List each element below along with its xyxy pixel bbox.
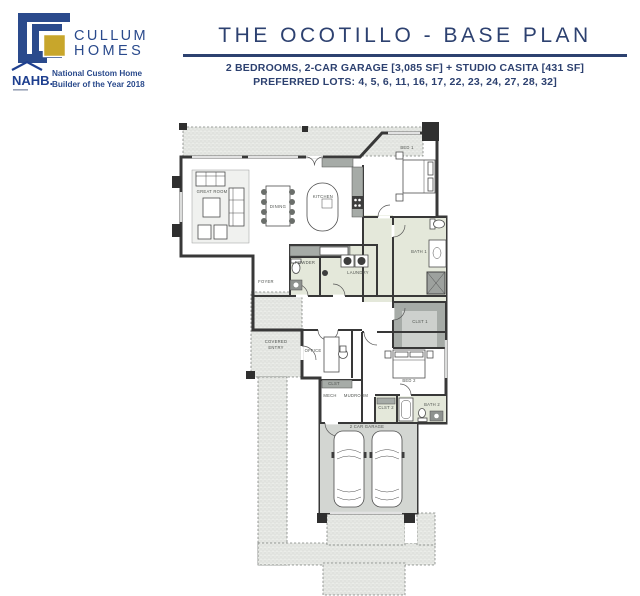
- room-label: DINING: [270, 204, 286, 209]
- floor-plan-sheet: CULLUM HOMES NAHB. National Custom Home …: [0, 0, 640, 596]
- clst2-shelf: [377, 398, 395, 404]
- armchair: [214, 225, 227, 239]
- room-label: CLST 1: [412, 319, 428, 324]
- room-label: GREAT ROOM: [197, 189, 228, 194]
- kitchen-counter: [352, 167, 363, 217]
- car: [370, 431, 405, 507]
- kitchen-counter: [322, 158, 353, 167]
- room-label: BED 1: [400, 145, 414, 150]
- toilet: [419, 409, 426, 418]
- covered-entry-area: [251, 292, 302, 377]
- washer-drum: [344, 257, 352, 265]
- car: [332, 431, 367, 507]
- driveway-apron: [327, 513, 405, 545]
- room-label: MUDROOM: [344, 393, 369, 398]
- sectional-sofa: [229, 188, 244, 226]
- tub: [399, 398, 413, 421]
- desk-item: [340, 346, 346, 352]
- front-walk-band: [258, 543, 435, 565]
- toilet: [434, 220, 445, 228]
- nightstand: [427, 351, 433, 358]
- room-label: BED 2: [402, 378, 416, 383]
- nightstand: [385, 351, 391, 358]
- toilet-tank: [418, 418, 427, 422]
- pillow: [428, 178, 433, 191]
- coffee-table: [203, 198, 220, 217]
- walkway-area: [258, 377, 287, 565]
- room-label: COVERED: [265, 339, 287, 344]
- room-label: BATH 1: [411, 249, 427, 254]
- bath1-vanity: [429, 240, 446, 267]
- bench: [320, 247, 348, 255]
- room-label: BATH 2: [424, 402, 440, 407]
- armchair: [198, 225, 211, 239]
- laundry-sink: [322, 270, 328, 276]
- side-paving: [417, 513, 435, 545]
- room-label: LAUNDRY: [347, 270, 369, 275]
- pillow: [395, 352, 408, 357]
- dryer-drum: [358, 257, 366, 265]
- room-label: CLST: [328, 381, 340, 386]
- sofa: [196, 172, 225, 186]
- nightstand: [396, 194, 403, 201]
- office-desk: [324, 337, 339, 372]
- nightstand: [396, 152, 403, 159]
- room-label: CLST 2: [378, 405, 394, 410]
- range: [352, 196, 363, 209]
- paving-gap: [405, 523, 417, 543]
- room-label: OFFICE: [305, 348, 322, 353]
- floor-plan-drawing: GREAT ROOMDININGKITCHENBED 1BATH 1CLST 1…: [0, 0, 640, 596]
- kitchen-island: [307, 183, 338, 231]
- room-label: KITCHEN: [313, 194, 333, 199]
- pillow: [410, 352, 423, 357]
- pillow: [428, 162, 433, 175]
- room-label: 2 CAR GARAGE: [350, 424, 384, 429]
- room-label: ENTRY: [268, 345, 283, 350]
- room-label: MECH: [323, 393, 336, 398]
- room-label: FOYER: [258, 279, 274, 284]
- room-label: POWDER: [295, 260, 315, 265]
- driveway-lower: [323, 563, 405, 595]
